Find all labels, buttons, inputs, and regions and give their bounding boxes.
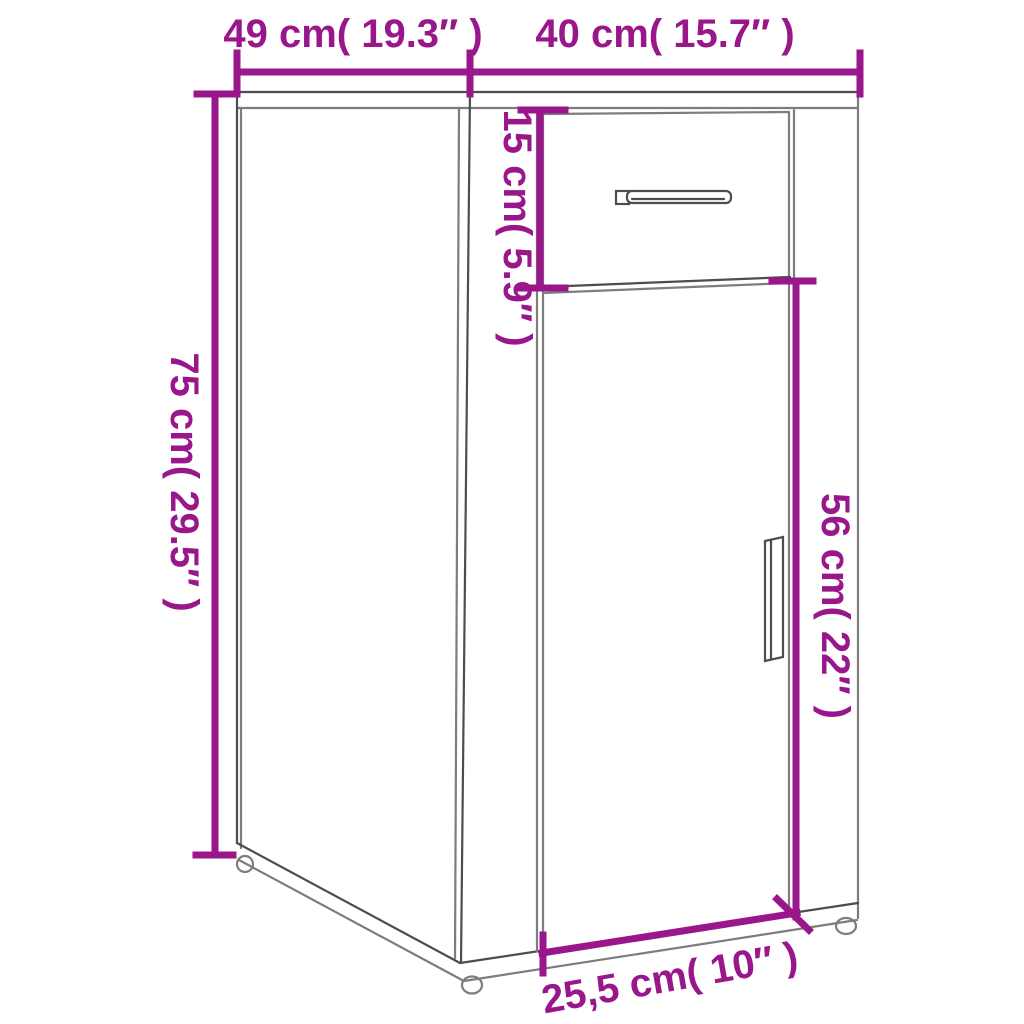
- corner-edge-outer: [461, 92, 470, 963]
- drawer-handle: [616, 191, 731, 204]
- cabinet-dimension-drawing: 49 cm( 19.3″ ) 40 cm( 15.7″ ) 75 cm( 29.…: [0, 0, 1024, 1024]
- dimension-diagram: 49 cm( 19.3″ ) 40 cm( 15.7″ ) 75 cm( 29.…: [0, 0, 1024, 1024]
- drawer-top-edge: [543, 112, 789, 114]
- cabinet-outline: [237, 92, 858, 994]
- side-bottom-edge: [237, 843, 460, 963]
- dimension-width-label: 40 cm( 15.7″ ): [535, 12, 794, 56]
- dimension-height-label: 75 cm( 29.5″ ): [162, 352, 206, 611]
- dimension-door-height-label: 56 cm( 22″ ): [813, 493, 857, 719]
- dimension-drawer-height-label: 15 cm( 5.9″ ): [495, 109, 539, 346]
- side-plinth-bottom-edge: [239, 860, 462, 980]
- dimension-labels: 49 cm( 19.3″ ) 40 cm( 15.7″ ) 75 cm( 29.…: [162, 12, 857, 1022]
- dimension-depth-width-line: [237, 53, 860, 94]
- door-handle: [765, 537, 783, 661]
- corner-edge-inner: [455, 108, 459, 958]
- dimension-depth-label: 49 cm( 19.3″ ): [223, 12, 482, 56]
